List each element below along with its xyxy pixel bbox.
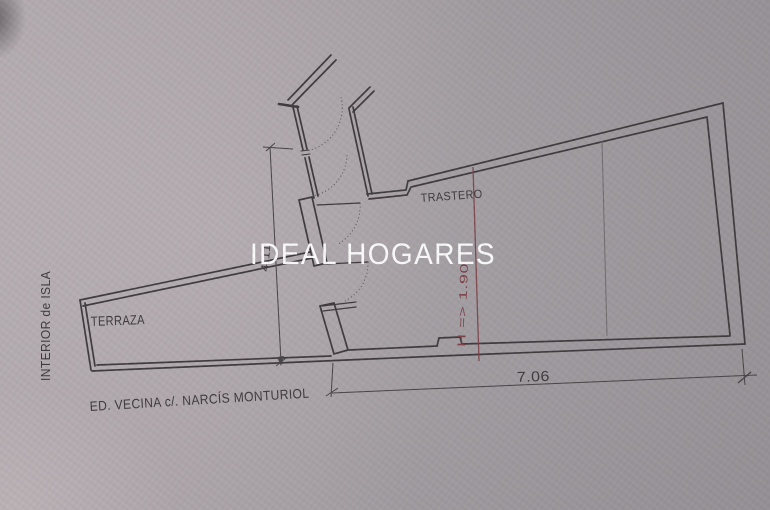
floorplan-photo: TRASTERO TERRAZA ED. VECINA c/. NARCÍS M… (0, 0, 770, 510)
door-leaf (317, 203, 360, 205)
trastero-top-wall-outer (367, 103, 723, 194)
terraza-left-wall-inner (85, 303, 95, 366)
dim-extension (263, 147, 293, 149)
agency-watermark: IDEAL HOGARES (250, 238, 496, 271)
entrance-diagonal-walls (279, 55, 374, 112)
trastero-top-wall-inner (369, 117, 707, 199)
margin-label-interior-isla: INTERIOR de ISLA (39, 271, 53, 381)
room-label-terraza: TERRAZA (91, 312, 145, 329)
corridor-right-wall (353, 107, 372, 194)
height-note: H => 1.90 (456, 263, 471, 347)
street-caption: ED. VECINA c/. NARCÍS MONTURIOL (89, 386, 310, 414)
wall-line (292, 60, 336, 105)
wall-line (288, 55, 331, 100)
bottom-wall-inner-terraza (97, 356, 331, 365)
bottom-wall-inner-trastero (349, 336, 730, 350)
corridor-right-wall (349, 109, 368, 196)
partition-line (602, 141, 607, 336)
corridor-left-wall (297, 106, 318, 196)
trastero-walls (92, 103, 745, 371)
wall-end-cap (279, 104, 298, 107)
door-swing-arc (306, 97, 342, 151)
dim-value-bottom-width: 7.06 (517, 369, 551, 386)
floor-step-line (322, 302, 356, 311)
floor-plan-svg: TRASTERO TERRAZA ED. VECINA c/. NARCÍS M… (0, 0, 770, 510)
entrance-corridor-walls (293, 106, 372, 198)
plan-walls (80, 55, 745, 371)
dim-tick (326, 388, 338, 396)
door-swing-arcs (306, 97, 368, 302)
corridor-left-wall (293, 107, 314, 198)
door-swing-arc (313, 155, 347, 196)
bottom-wall-outer (92, 344, 745, 371)
interior-wall-chunks (299, 197, 356, 354)
